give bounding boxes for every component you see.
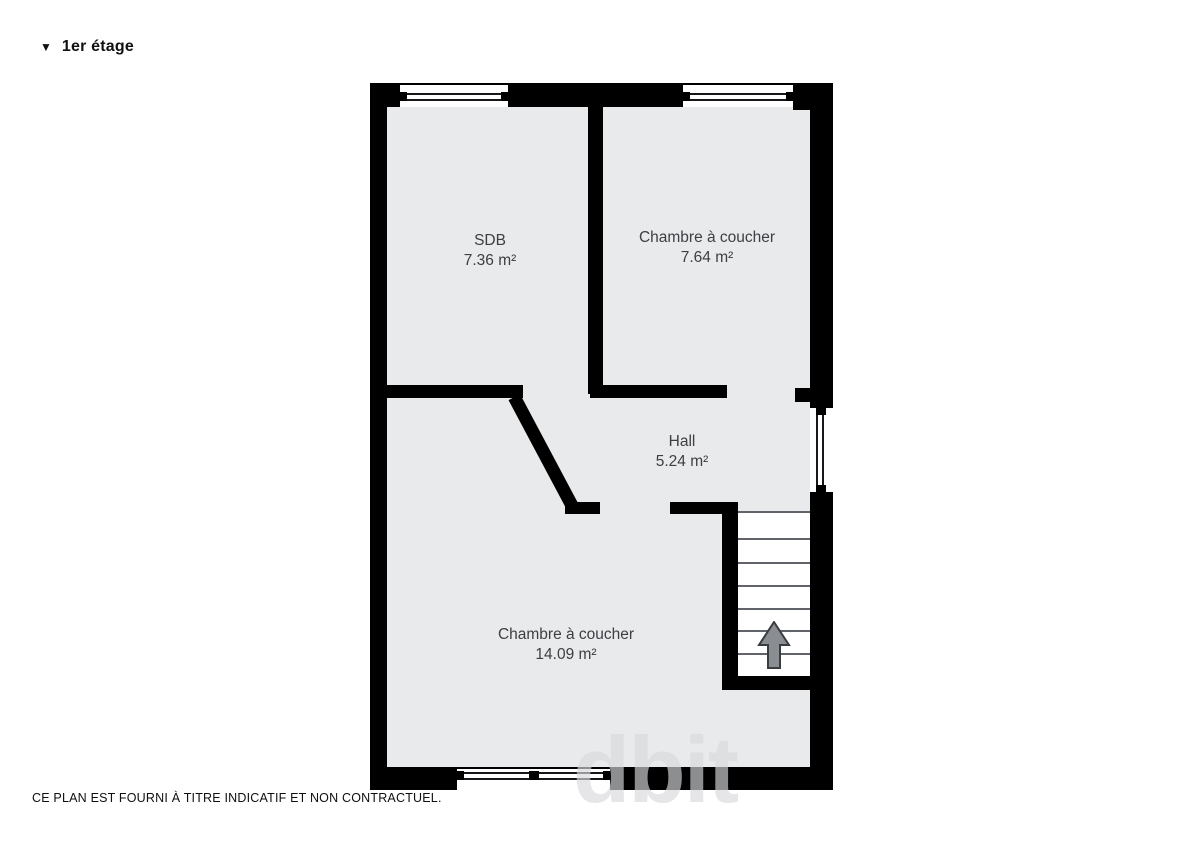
room-area: 7.64 m²: [587, 248, 827, 268]
stair-tread-line: [738, 562, 810, 564]
room-area: 14.09 m²: [446, 645, 686, 665]
window-cap: [786, 92, 793, 101]
window-cap: [457, 771, 464, 780]
room-name: Chambre à coucher: [587, 228, 827, 248]
wall-stairs-bottom: [722, 676, 813, 690]
wall-hall-top-stub: [795, 388, 813, 402]
window-cap: [603, 771, 610, 780]
stair-tread-line: [738, 538, 810, 540]
window-pane: [816, 410, 824, 490]
plan-title-text: 1er étage: [62, 38, 134, 56]
floor-plan: SDB 7.36 m² Chambre à coucher 7.64 m² Ha…: [370, 83, 833, 790]
wall-hall-top: [590, 385, 727, 398]
window-cap: [683, 92, 690, 101]
disclaimer: CE PLAN EST FOURNI À TITRE INDICATIF ET …: [32, 791, 442, 805]
window-cap: [529, 771, 539, 780]
room-label-hall: Hall 5.24 m²: [622, 432, 742, 472]
room-label-bedroom-2: Chambre à coucher 14.09 m²: [446, 625, 686, 665]
room-label-sdb: SDB 7.36 m²: [430, 231, 550, 271]
window-cap: [816, 408, 826, 415]
window-pane: [401, 93, 507, 101]
room-label-bedroom-1: Chambre à coucher 7.64 m²: [587, 228, 827, 268]
room-name: Chambre à coucher: [446, 625, 686, 645]
window-pane: [684, 93, 792, 101]
window-right-icon: [810, 408, 833, 492]
wall-sdb-bottom: [387, 385, 523, 398]
room-name: Hall: [622, 432, 742, 452]
stair-tread-line: [738, 585, 810, 587]
room-area: 5.24 m²: [622, 452, 742, 472]
window-top-right-icon: [683, 85, 793, 107]
window-top-left-icon: [400, 85, 508, 107]
window-cap: [816, 485, 826, 492]
wall-outer-left: [370, 83, 387, 790]
window-cap: [501, 92, 508, 101]
wall-diagonal-foot: [565, 502, 600, 514]
wall-corner-top-right: [793, 83, 833, 110]
room-name: SDB: [430, 231, 550, 251]
window-bottom-icon: [457, 769, 610, 790]
room-area: 7.36 m²: [430, 251, 550, 271]
collapse-triangle-icon[interactable]: ▼: [40, 39, 52, 55]
floor-plan-page: ▼ 1er étage: [0, 0, 1200, 848]
stair-tread-line: [738, 608, 810, 610]
plan-title[interactable]: ▼ 1er étage: [40, 38, 134, 56]
staircase: [738, 511, 810, 676]
wall-stairs-left: [722, 502, 738, 690]
stairs-up-arrow-icon: [757, 621, 791, 669]
window-cap: [400, 92, 407, 101]
stair-tread-line: [738, 511, 810, 513]
wall-hall-bottom: [670, 502, 730, 514]
